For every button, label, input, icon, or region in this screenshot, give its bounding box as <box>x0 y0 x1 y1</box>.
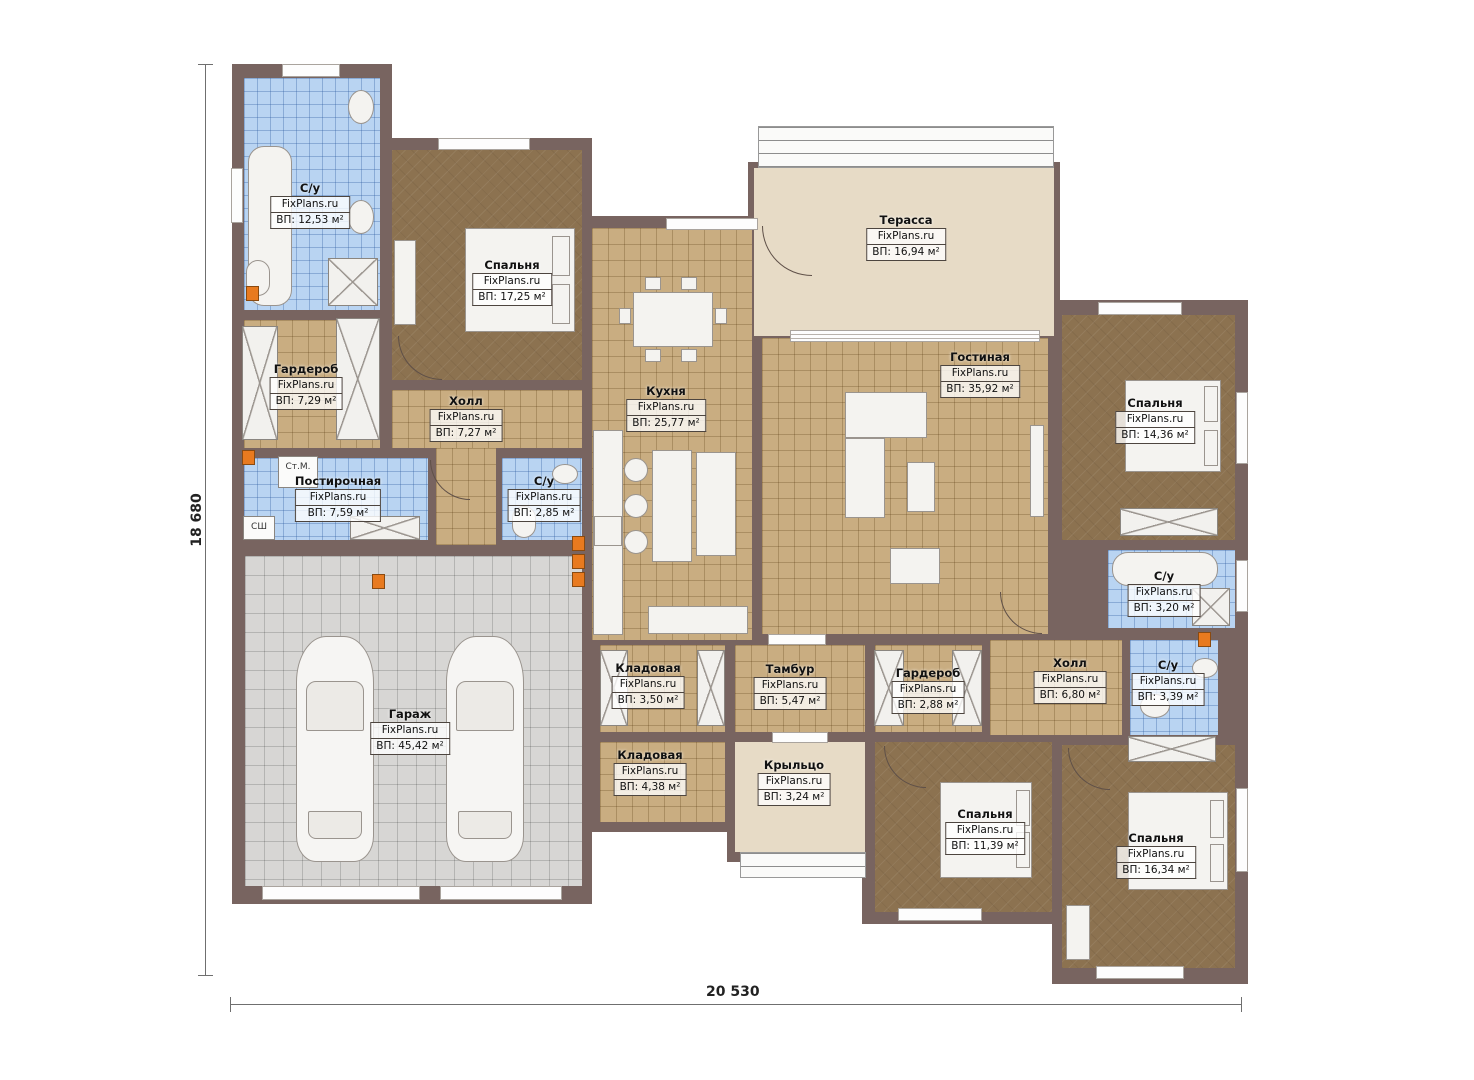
room-label-porch: Крыльцо FixPlans.ru ВП: 3,24 м² <box>758 758 831 806</box>
closet <box>336 318 380 440</box>
room-label-garage: Гараж FixPlans.ru ВП: 45,42 м² <box>370 707 450 755</box>
room-label-bedroom-1: Спальня FixPlans.ru ВП: 17,25 м² <box>472 258 552 306</box>
sink <box>348 90 374 124</box>
window <box>438 138 530 150</box>
pillow <box>552 284 570 324</box>
dining-table <box>633 292 713 347</box>
dimension-line-vertical <box>205 64 206 976</box>
room-label-bedroom-4: Спальня FixPlans.ru ВП: 16,34 м² <box>1116 831 1196 879</box>
window <box>666 218 758 230</box>
watermark: FixPlans.ru <box>758 773 831 790</box>
car-windshield <box>306 681 364 731</box>
room-label-kitchen: Кухня FixPlans.ru ВП: 25,77 м² <box>626 384 706 432</box>
dimension-tick <box>1241 997 1242 1012</box>
watermark: FixPlans.ru <box>270 196 350 213</box>
chair <box>715 308 727 324</box>
stool <box>624 530 648 554</box>
car-rear-glass <box>308 811 362 839</box>
sofa <box>845 392 927 438</box>
door-gap <box>772 732 828 743</box>
window <box>1096 966 1184 979</box>
terrace-glazing <box>790 330 1040 342</box>
watermark: FixPlans.ru <box>295 489 381 506</box>
pillow <box>1204 430 1218 466</box>
electric-box <box>1198 632 1211 647</box>
watermark: FixPlans.ru <box>508 489 581 506</box>
room-label-wardrobe-2: Гардероб FixPlans.ru ВП: 2,88 м² <box>892 666 965 714</box>
electric-box <box>372 574 385 589</box>
room-label-tambour: Тамбур FixPlans.ru ВП: 5,47 м² <box>754 662 827 710</box>
dimension-line-horizontal <box>230 1004 1242 1005</box>
watermark: FixPlans.ru <box>892 681 965 698</box>
garage-door-1 <box>262 886 420 900</box>
chair <box>645 277 661 290</box>
room-label-bathroom-1: С/у FixPlans.ru ВП: 12,53 м² <box>270 181 350 229</box>
pillow <box>1204 386 1218 422</box>
chair <box>645 349 661 362</box>
watermark: FixPlans.ru <box>430 409 503 426</box>
electric-box <box>572 554 585 569</box>
sink <box>348 200 374 234</box>
chair <box>619 308 631 324</box>
watermark: FixPlans.ru <box>754 677 827 694</box>
electric-box <box>572 572 585 587</box>
pillow <box>1210 844 1224 882</box>
window <box>282 64 340 77</box>
window <box>1236 560 1248 612</box>
washer-label: Ст.М. <box>285 462 310 472</box>
room-label-storage-2: Кладовая FixPlans.ru ВП: 4,38 м² <box>614 748 687 796</box>
watermark: FixPlans.ru <box>612 676 685 693</box>
watermark: FixPlans.ru <box>866 228 946 245</box>
room-label-hall-1: Холл FixPlans.ru ВП: 7,27 м² <box>430 394 503 442</box>
floor-plan: Ст.М. СШ <box>0 0 1474 1080</box>
watermark: FixPlans.ru <box>940 365 1020 382</box>
shower <box>328 258 378 306</box>
closet <box>1128 736 1216 762</box>
room-label-bedroom-3: Спальня FixPlans.ru ВП: 11,39 м² <box>945 807 1025 855</box>
chair <box>681 277 697 290</box>
watermark: FixPlans.ru <box>1132 673 1205 690</box>
electric-box <box>242 450 255 465</box>
watermark: FixPlans.ru <box>945 822 1025 839</box>
entry-door-gap <box>768 634 826 645</box>
stool <box>624 494 648 518</box>
wardrobe-unit <box>1066 905 1090 960</box>
window <box>1236 392 1248 464</box>
room-label-bedroom-2: Спальня FixPlans.ru ВП: 14,36 м² <box>1115 396 1195 444</box>
wardrobe-unit <box>394 240 416 325</box>
counter <box>648 606 748 634</box>
watermark: FixPlans.ru <box>626 399 706 416</box>
watermark: FixPlans.ru <box>1034 671 1107 688</box>
pillow <box>1210 800 1224 838</box>
watermark: FixPlans.ru <box>270 377 343 394</box>
watermark: FixPlans.ru <box>1128 584 1201 601</box>
garage-door-2 <box>440 886 562 900</box>
room-label-bathroom-2: С/у FixPlans.ru ВП: 2,85 м² <box>508 474 581 522</box>
kitchen-island <box>652 450 692 562</box>
watermark: FixPlans.ru <box>472 273 552 290</box>
stool <box>624 458 648 482</box>
pillow <box>552 236 570 276</box>
dimension-tick <box>230 997 231 1012</box>
watermark: FixPlans.ru <box>1115 411 1195 428</box>
dimension-height-label: 18 680 <box>189 493 205 547</box>
stove <box>594 516 622 546</box>
electric-box <box>572 536 585 551</box>
car <box>296 636 374 862</box>
window <box>231 168 243 223</box>
window <box>1098 302 1182 315</box>
dimension-width-label: 20 530 <box>706 984 760 1000</box>
porch-steps <box>740 852 866 878</box>
car-rear-glass <box>458 811 512 839</box>
watermark: FixPlans.ru <box>370 722 450 739</box>
watermark: FixPlans.ru <box>1116 846 1196 863</box>
room-label-living: Гостиная FixPlans.ru ВП: 35,92 м² <box>940 350 1020 398</box>
room-label-terrace: Терасса FixPlans.ru ВП: 16,94 м² <box>866 213 946 261</box>
closet <box>1120 508 1218 536</box>
room-label-wardrobe-1: Гардероб FixPlans.ru ВП: 7,29 м² <box>270 362 343 410</box>
car <box>446 636 524 862</box>
dryer-label: СШ <box>251 522 267 532</box>
coffee-table <box>907 462 935 512</box>
room-label-bathroom-4: С/у FixPlans.ru ВП: 3,39 м² <box>1132 658 1205 706</box>
armchair <box>890 548 940 584</box>
closet <box>697 650 725 726</box>
window <box>898 908 982 921</box>
window <box>1236 788 1248 872</box>
room-label-bathroom-3: С/у FixPlans.ru ВП: 3,20 м² <box>1128 569 1201 617</box>
room-label-storage-1: Кладовая FixPlans.ru ВП: 3,50 м² <box>612 661 685 709</box>
tv-stand <box>1030 425 1044 517</box>
car-windshield <box>456 681 514 731</box>
terrace-steps <box>758 126 1054 168</box>
fridge-unit <box>696 452 736 556</box>
dryer-box: СШ <box>243 516 275 540</box>
room-label-laundry: Постирочная FixPlans.ru ВП: 7,59 м² <box>295 474 381 522</box>
chair <box>681 349 697 362</box>
electric-box <box>246 286 259 301</box>
dimension-tick <box>198 975 213 976</box>
room-label-hall-2: Холл FixPlans.ru ВП: 6,80 м² <box>1034 656 1107 704</box>
sofa <box>845 438 885 518</box>
watermark: FixPlans.ru <box>614 763 687 780</box>
dimension-tick <box>198 64 213 65</box>
